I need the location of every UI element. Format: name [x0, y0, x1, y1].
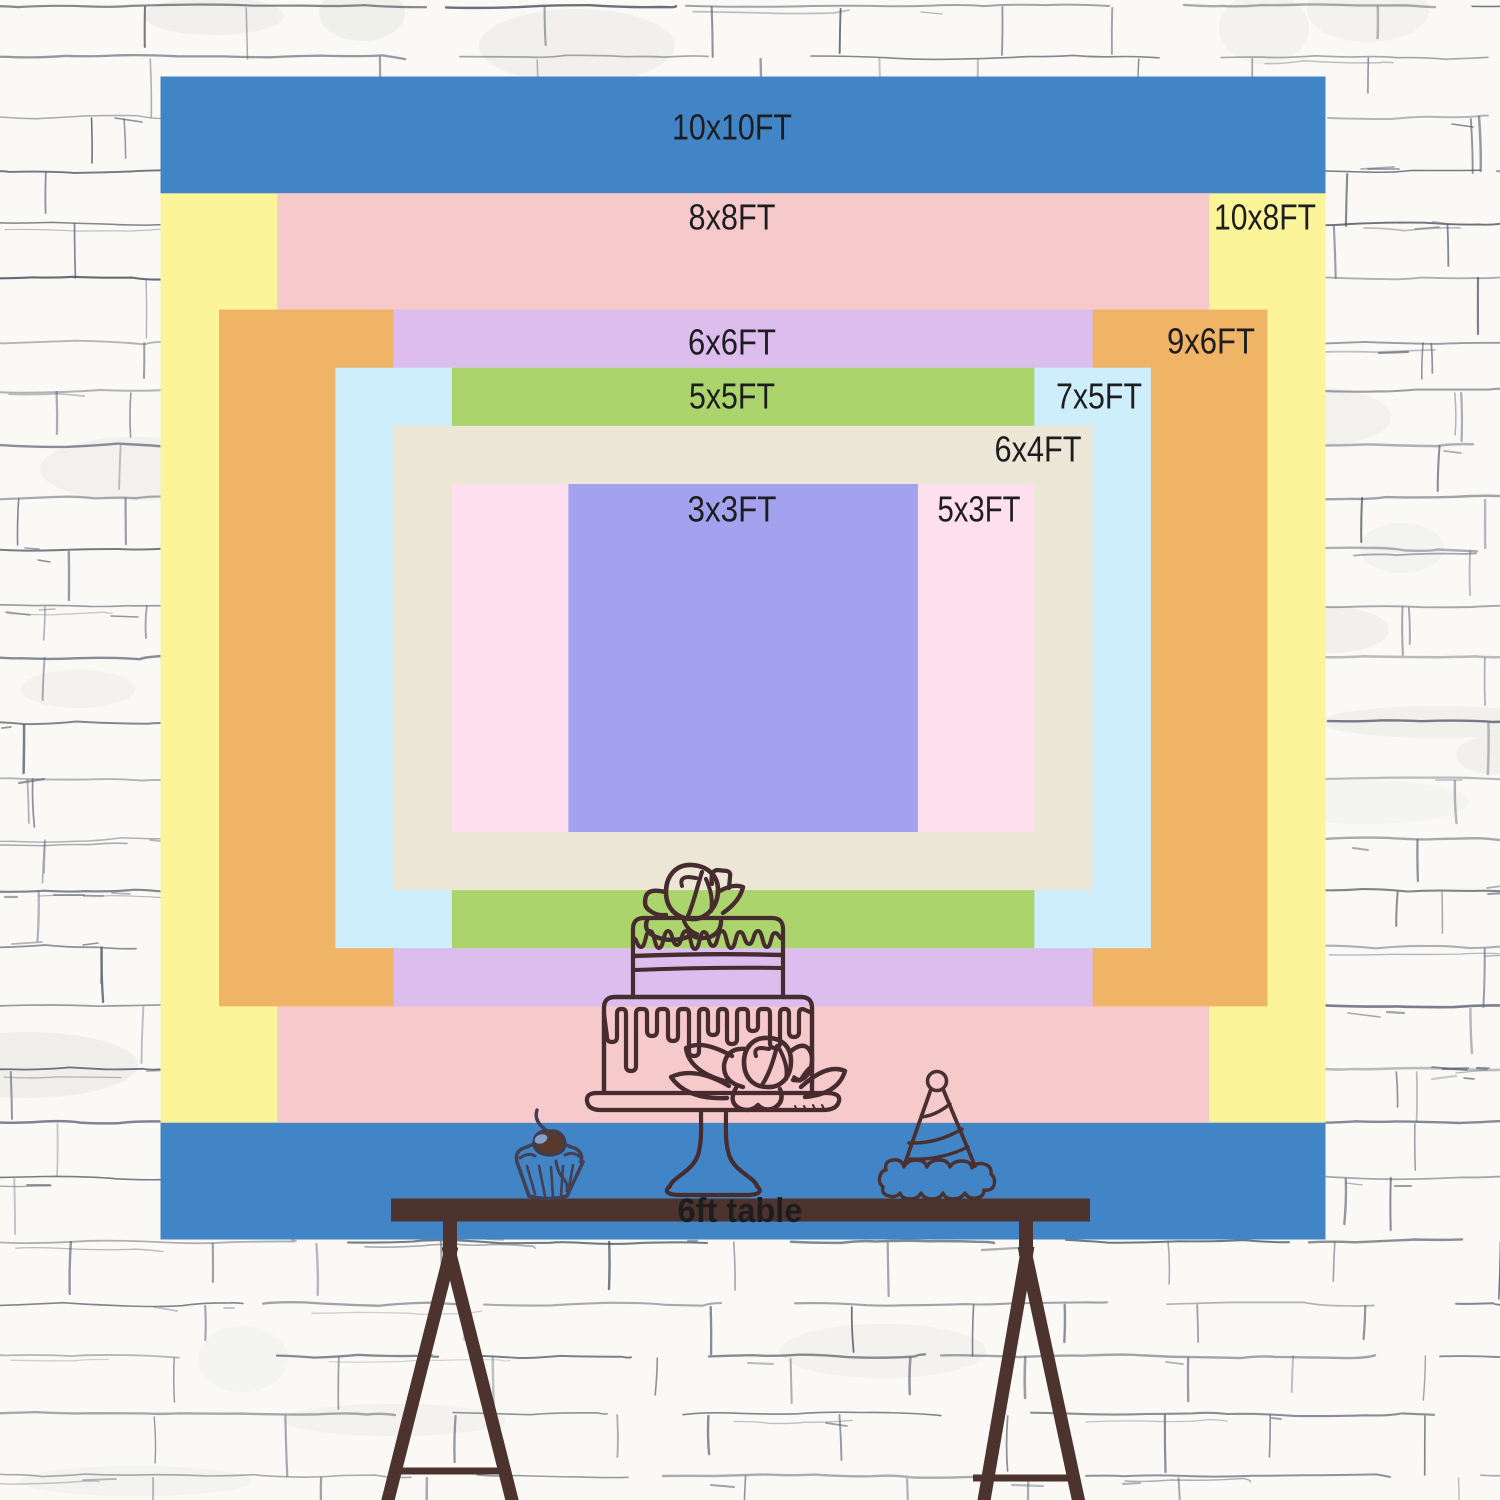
svg-text:6x6FT: 6x6FT — [688, 322, 776, 363]
svg-text:9x6FT: 9x6FT — [1167, 321, 1255, 362]
svg-text:5x3FT: 5x3FT — [938, 489, 1021, 530]
svg-text:8x8FT: 8x8FT — [689, 197, 776, 238]
svg-text:5x5FT: 5x5FT — [689, 376, 775, 417]
svg-text:6x4FT: 6x4FT — [995, 429, 1082, 470]
svg-text:3x3FT: 3x3FT — [688, 489, 777, 530]
svg-text:6ft table: 6ft table — [678, 1192, 803, 1230]
svg-text:10x8FT: 10x8FT — [1214, 197, 1316, 238]
svg-text:10x10FT: 10x10FT — [672, 107, 792, 148]
svg-text:7x5FT: 7x5FT — [1056, 376, 1142, 417]
